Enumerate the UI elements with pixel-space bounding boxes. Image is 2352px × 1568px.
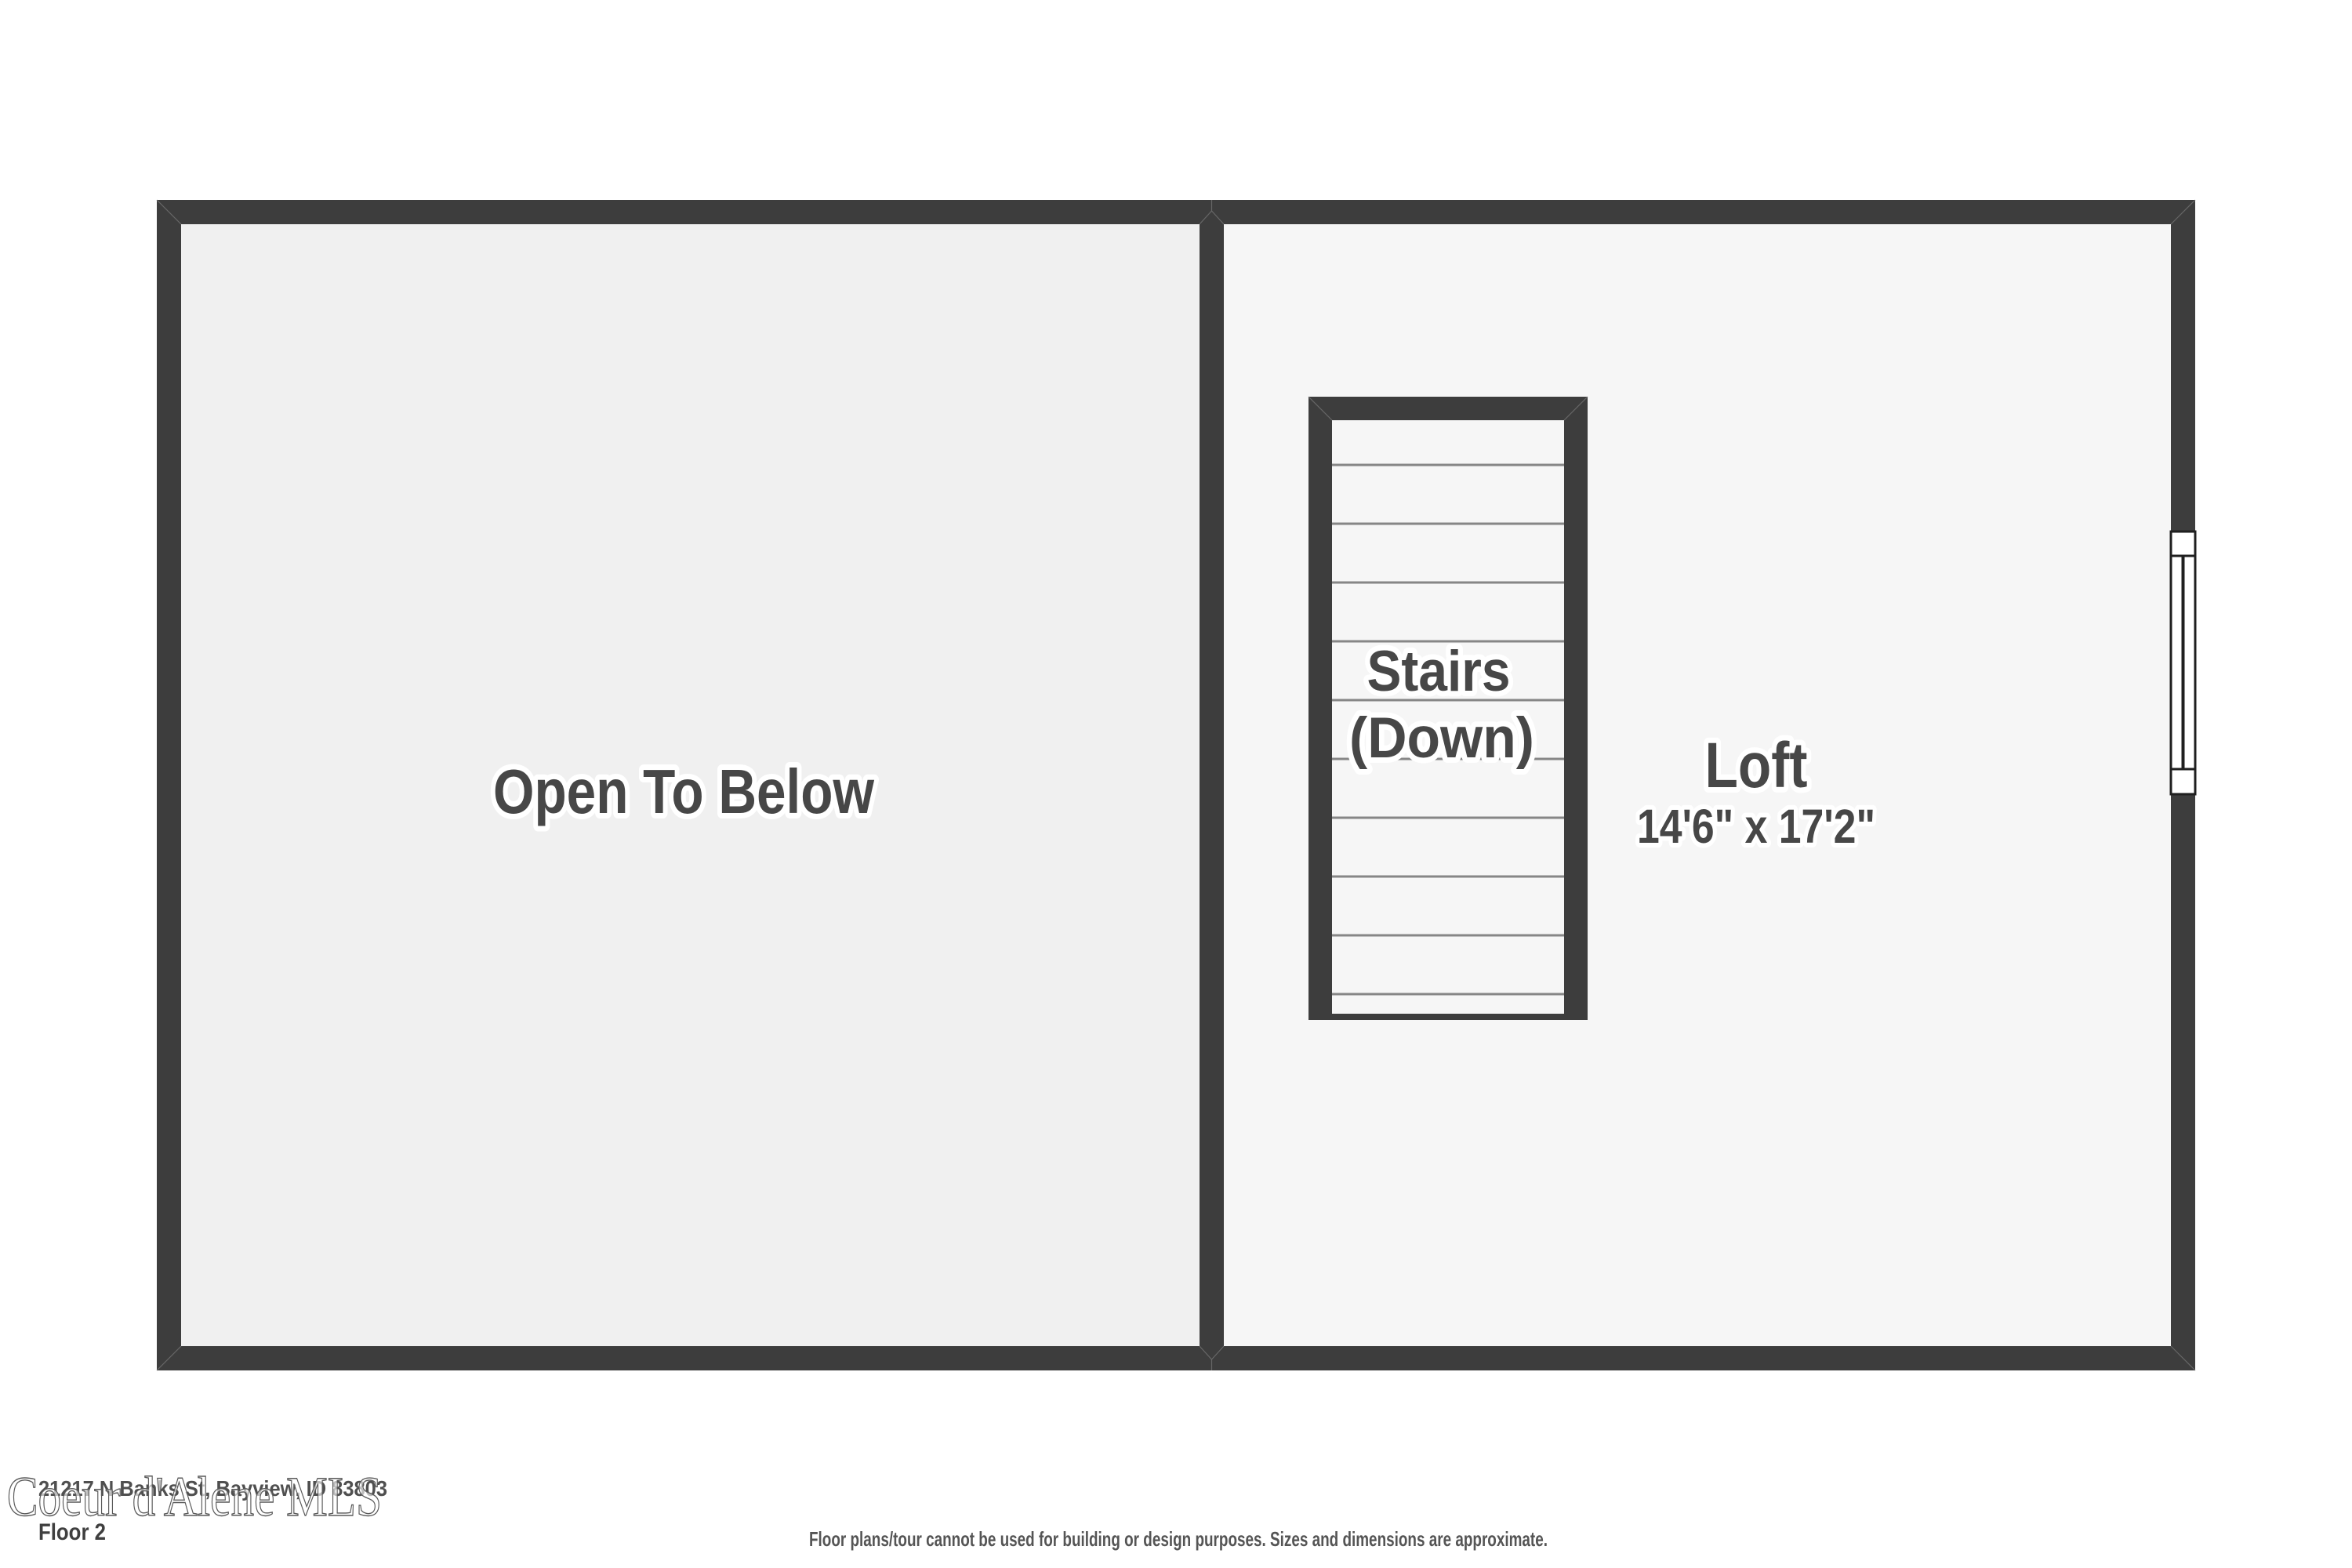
svg-text:Stairs: Stairs: [1367, 640, 1511, 703]
svg-text:(Down): (Down): [1349, 706, 1534, 770]
svg-text:Open To Below: Open To Below: [493, 757, 875, 826]
svg-text:Floor plans/tour cannot be use: Floor plans/tour cannot be used for buil…: [809, 1527, 1548, 1551]
svg-text:Loft: Loft: [1705, 730, 1808, 801]
svg-text:14'6" x 17'2": 14'6" x 17'2": [1637, 800, 1875, 853]
svg-text:Coeur d'Alene MLS: Coeur d'Alene MLS: [7, 1465, 382, 1528]
svg-text:Floor 2: Floor 2: [38, 1519, 106, 1545]
